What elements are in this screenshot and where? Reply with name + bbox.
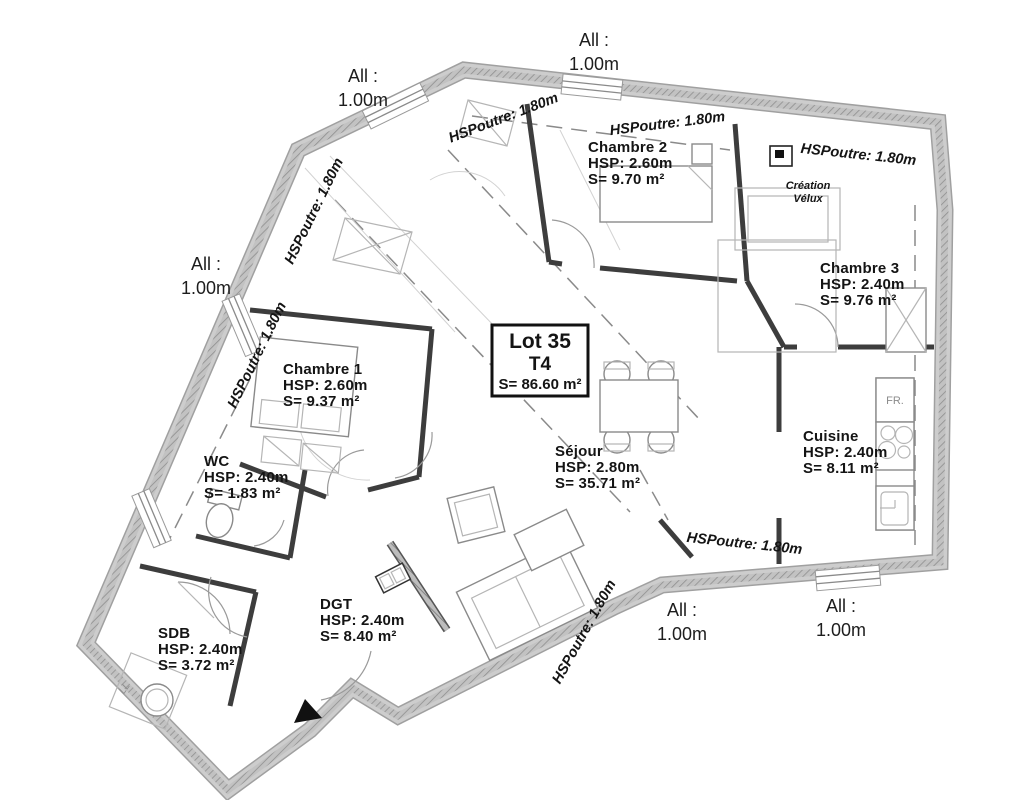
room-area: S= 9.70 m² xyxy=(588,171,665,188)
allege-top-center: All : 1.00m xyxy=(569,30,619,74)
allege-line1: All : xyxy=(826,596,856,616)
room-area: S= 8.11 m² xyxy=(803,460,879,477)
velux-icon xyxy=(770,146,792,166)
room-name: DGT xyxy=(320,596,352,613)
room-area: S= 9.37 m² xyxy=(283,393,360,410)
lot-name: Lot 35 xyxy=(509,330,571,353)
room-name: Chambre 3 xyxy=(820,260,899,277)
room-name: Chambre 1 xyxy=(283,361,362,378)
room-label-cuisine: Cuisine HSP: 2.40m S= 8.11 m² xyxy=(803,428,888,477)
room-hsp: HSP: 2.40m xyxy=(820,276,905,293)
room-hsp: HSP: 2.40m xyxy=(158,641,243,658)
room-label-dgt: DGT HSP: 2.40m S= 8.40 m² xyxy=(320,596,405,645)
room-name: Cuisine xyxy=(803,428,859,445)
room-label-sejour: Séjour HSP: 2.80m S= 35.71 m² xyxy=(555,443,640,492)
room-area: S= 8.40 m² xyxy=(320,628,397,645)
room-name: SDB xyxy=(158,625,190,642)
beam-label: HSPoutre: 1.80m xyxy=(686,530,803,558)
armchair xyxy=(447,487,505,543)
floor-plan-svg: Lot 35 T4 S= 86.60 m² Chambre 2 HSP: 2.6… xyxy=(0,0,1018,800)
fridge-label: FR. xyxy=(886,395,904,407)
lot-info-box: Lot 35 T4 S= 86.60 m² xyxy=(492,325,588,396)
room-hsp: HSP: 2.60m xyxy=(283,377,368,394)
room-name: WC xyxy=(204,453,229,470)
allege-line2: 1.00m xyxy=(816,620,866,640)
lot-type: T4 xyxy=(529,354,552,375)
room-area: S= 9.76 m² xyxy=(820,292,897,309)
room-hsp: HSP: 2.40m xyxy=(320,612,405,629)
allege-line1: All : xyxy=(667,600,697,620)
room-area: S= 3.72 m² xyxy=(158,657,235,674)
room-area: S= 35.71 m² xyxy=(555,475,640,492)
dresser-chambre1 xyxy=(261,436,342,473)
allege-line1: All : xyxy=(348,66,378,86)
velux-line1: Création xyxy=(786,180,831,192)
room-label-chambre2: Chambre 2 HSP: 2.60m S= 9.70 m² xyxy=(588,139,673,188)
room-name: Séjour xyxy=(555,443,603,460)
allege-line2: 1.00m xyxy=(338,90,388,110)
room-area: S= 1.83 m² xyxy=(204,485,281,502)
allege-line1: All : xyxy=(191,254,221,274)
velux-line2: Vélux xyxy=(793,193,823,205)
room-hsp: HSP: 2.40m xyxy=(803,444,888,461)
room-name: Chambre 2 xyxy=(588,139,667,156)
dining-set xyxy=(600,361,678,453)
room-hsp: HSP: 2.80m xyxy=(555,459,640,476)
beam-label: HSPoutre: 1.80m xyxy=(609,109,726,139)
room-hsp: HSP: 2.60m xyxy=(588,155,673,172)
technical-box xyxy=(376,563,411,593)
allege-bottom-right: All : 1.00m xyxy=(816,596,866,640)
allege-line2: 1.00m xyxy=(657,624,707,644)
window-top xyxy=(561,74,623,100)
room-label-chambre3: Chambre 3 HSP: 2.40m S= 9.76 m² xyxy=(820,260,905,309)
allege-line1: All : xyxy=(579,30,609,50)
lot-area: S= 86.60 m² xyxy=(499,376,582,393)
allege-line2: 1.00m xyxy=(181,278,231,298)
room-label-wc: WC HSP: 2.40m S= 1.83 m² xyxy=(204,453,289,502)
velux-label: Création Vélux xyxy=(786,180,831,205)
beam-label: HSPoutre: 1.80m xyxy=(800,141,917,169)
allege-top-left: All : 1.00m xyxy=(338,66,388,110)
allege-bottom-center: All : 1.00m xyxy=(657,600,707,644)
room-label-chambre1: Chambre 1 HSP: 2.60m S= 9.37 m² xyxy=(283,361,368,410)
allege-line2: 1.00m xyxy=(569,54,619,74)
room-hsp: HSP: 2.40m xyxy=(204,469,289,486)
allege-left: All : 1.00m xyxy=(181,254,231,298)
floor-plan-page: Lot 35 T4 S= 86.60 m² Chambre 2 HSP: 2.6… xyxy=(0,0,1018,800)
